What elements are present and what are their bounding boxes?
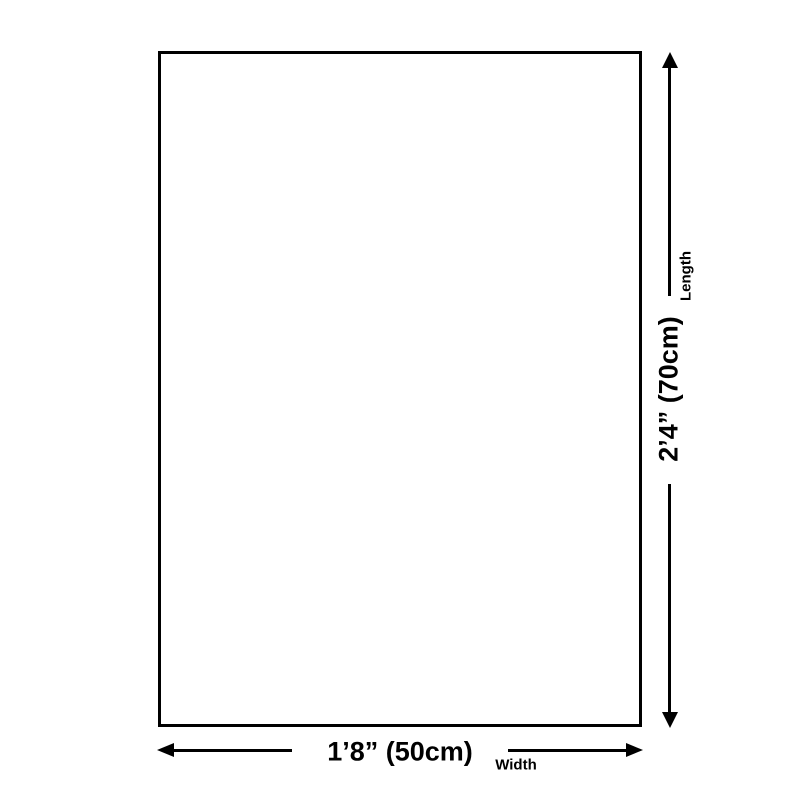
width-value-label: 1’8” (50cm): [327, 739, 473, 766]
length-value-label: 2’4” (70cm): [656, 316, 683, 462]
length-axis-label: Length: [679, 251, 694, 301]
arrow-left-icon: [157, 743, 174, 757]
width-arrow-line-left: [165, 749, 292, 752]
arrow-up-icon: [662, 52, 678, 68]
width-axis-label: Width: [495, 758, 537, 773]
width-arrow-line-right: [508, 749, 629, 752]
arrow-down-icon: [662, 712, 678, 728]
size-diagram: 2’4” (70cm) Length 1’8” (50cm) Width: [0, 0, 800, 800]
product-outline-rect: [158, 51, 642, 727]
length-arrow-line-bottom: [668, 484, 671, 718]
length-arrow-line-top: [668, 60, 671, 296]
arrow-right-icon: [626, 743, 643, 757]
